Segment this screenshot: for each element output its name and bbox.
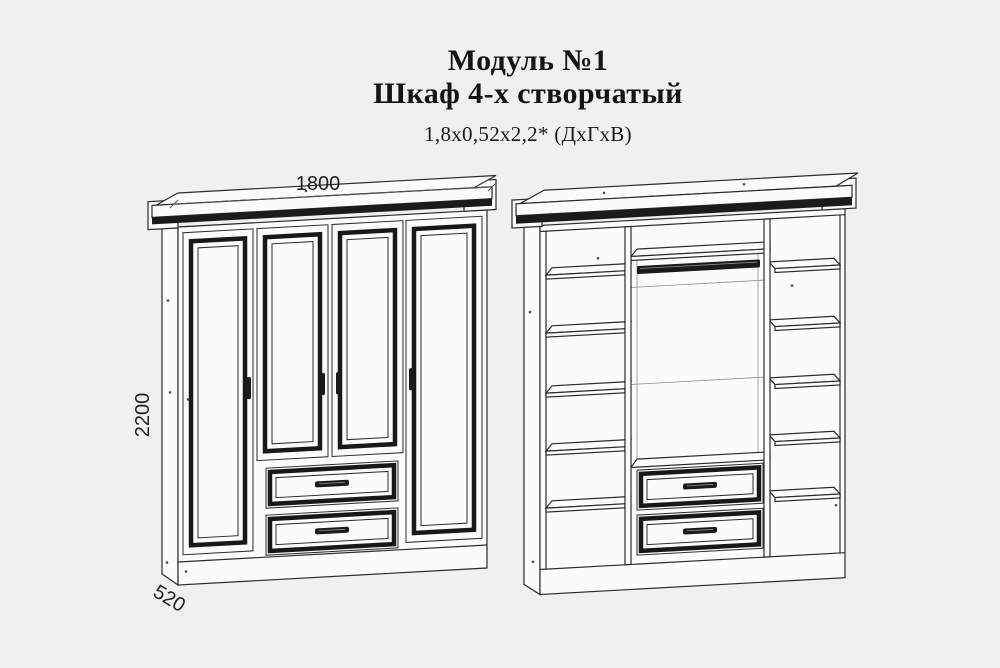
partition-right [764, 219, 770, 557]
partition-left [625, 226, 631, 564]
diagram-canvas: 1800 2200 520 [0, 0, 1000, 668]
page: Модуль №1 Шкаф 4-х створчатый 1,8х0,52х2… [0, 0, 1000, 668]
interior-view-drawing [512, 173, 858, 596]
width-dimension-label: 1800 [296, 173, 341, 195]
front-view-drawing [148, 176, 496, 587]
depth-dimension-label: 520 [149, 581, 189, 617]
height-dimension-label: 2200 [132, 393, 154, 438]
side-panel [162, 219, 178, 586]
side-panel [524, 218, 540, 595]
